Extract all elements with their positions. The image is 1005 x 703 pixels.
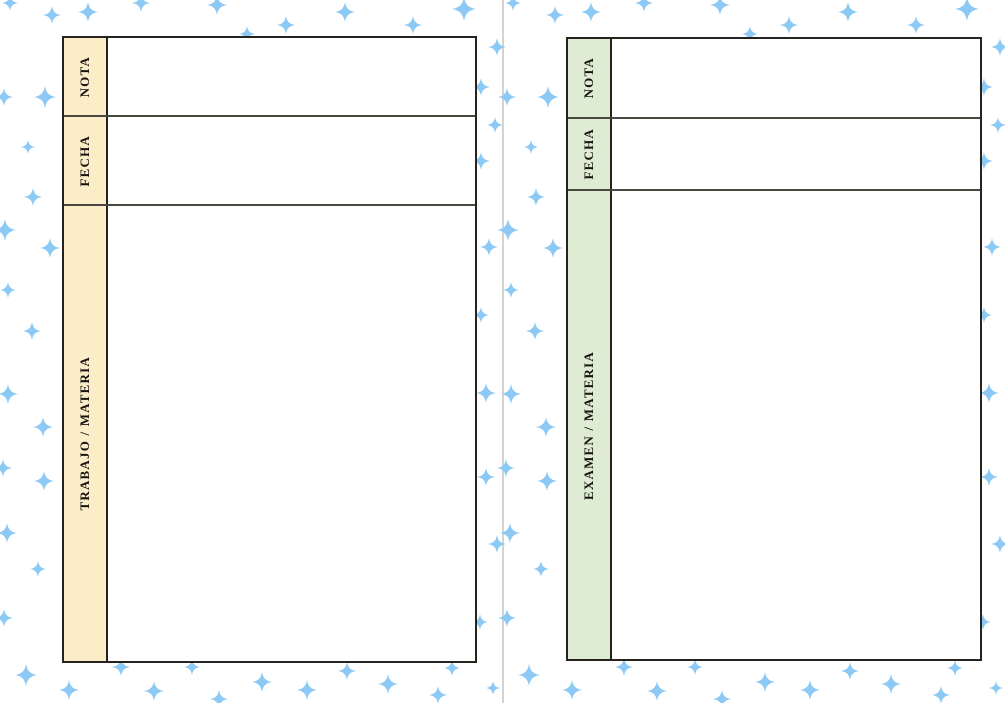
sparkle-icon: [21, 140, 35, 154]
row-header-label: NOTA: [581, 57, 597, 98]
sparkle-icon: [527, 188, 545, 206]
homework-tracker-table: NOTA FECHA TRABAJO / MATERIA: [62, 36, 477, 663]
sparkle-icon: [0, 219, 16, 241]
sparkle-icon: [562, 680, 582, 700]
sparkle-icon: [0, 609, 13, 627]
sparkle-icon: [0, 523, 17, 543]
sparkle-icon: [23, 322, 41, 340]
sparkle-icon: [710, 0, 730, 15]
sparkle-icon: [537, 86, 559, 108]
sparkle-icon: [30, 561, 46, 577]
sparkle-icon: [991, 38, 1005, 56]
table-row: NOTA: [64, 38, 475, 117]
sparkle-icon: [43, 6, 61, 24]
sparkle-icon: [210, 690, 228, 703]
sparkle-icon: [452, 0, 476, 21]
sparkle-icon: [838, 2, 858, 22]
sparkle-icon: [59, 680, 79, 700]
sparkle-icon: [991, 535, 1005, 553]
sparkle-icon: [378, 674, 398, 694]
sparkle-icon: [713, 690, 731, 703]
row-header-label: FECHA: [581, 128, 597, 180]
sparkle-icon: [500, 523, 520, 543]
sparkle-icon: [841, 662, 859, 680]
sparkle-icon: [487, 117, 503, 133]
row-header-label: TRABAJO / MATERIA: [77, 356, 93, 511]
sparkle-icon: [755, 672, 775, 692]
sparkle-icon: [979, 383, 999, 403]
row-header-label: EXAMEN / MATERIA: [581, 351, 597, 500]
table-row: FECHA: [568, 119, 980, 191]
exam-tracker-table: NOTA FECHA EXAMEN / MATERIA: [566, 37, 982, 661]
sparkle-icon: [989, 681, 1003, 695]
sparkle-icon: [144, 681, 164, 701]
sparkle-icon: [0, 384, 18, 404]
sparkle-icon: [480, 238, 498, 256]
sparkle-icon: [780, 16, 798, 34]
sparkle-icon: [207, 0, 227, 15]
sparkle-icon: [635, 0, 653, 12]
sparkle-icon: [78, 2, 98, 22]
sparkle-icon: [501, 384, 521, 404]
row-content-cell: [612, 191, 980, 659]
sparkle-icon: [581, 2, 601, 22]
sparkle-icon: [0, 282, 16, 298]
sparkle-icon: [687, 659, 703, 675]
row-header-fecha: FECHA: [568, 119, 612, 189]
sparkle-icon: [497, 219, 519, 241]
sparkle-icon: [34, 471, 54, 491]
row-header-fecha: FECHA: [64, 117, 108, 204]
sparkle-icon: [488, 38, 506, 56]
sparkle-icon: [990, 117, 1005, 133]
sparkle-icon: [498, 609, 516, 627]
sparkle-icon: [15, 664, 37, 686]
sparkle-icon: [546, 6, 564, 24]
sparkle-icon: [505, 0, 521, 11]
table-row: FECHA: [64, 117, 475, 206]
sparkle-icon: [40, 238, 60, 258]
sparkle-icon: [0, 459, 12, 477]
sparkle-icon: [477, 468, 495, 486]
row-content-cell: [108, 206, 475, 661]
sparkle-icon: [907, 16, 925, 34]
sparkle-icon: [2, 0, 18, 11]
sparkle-icon: [34, 86, 56, 108]
row-header-label: FECHA: [77, 135, 93, 187]
sparkle-icon: [497, 459, 515, 477]
sparkle-icon: [533, 561, 549, 577]
sparkle-icon: [476, 383, 496, 403]
row-header-nota: NOTA: [568, 39, 612, 117]
sparkle-icon: [881, 674, 901, 694]
sparkle-icon: [647, 681, 667, 701]
sparkle-icon: [404, 16, 422, 34]
sparkle-icon: [526, 322, 544, 340]
table-row: NOTA: [568, 39, 980, 119]
sparkle-icon: [983, 238, 1001, 256]
row-header-trabajo-materia: TRABAJO / MATERIA: [64, 206, 108, 661]
row-header-nota: NOTA: [64, 38, 108, 115]
sparkle-icon: [932, 686, 950, 703]
sparkle-icon: [518, 664, 540, 686]
row-content-cell: [108, 38, 475, 115]
sparkle-icon: [536, 417, 556, 437]
sparkle-icon: [955, 0, 979, 21]
row-content-cell: [108, 117, 475, 204]
sparkle-icon: [338, 662, 356, 680]
row-content-cell: [612, 119, 980, 189]
sparkle-icon: [498, 88, 516, 106]
sparkle-icon: [24, 188, 42, 206]
row-header-label: NOTA: [77, 56, 93, 97]
table-row: EXAMEN / MATERIA: [568, 191, 980, 659]
sparkle-icon: [0, 88, 13, 106]
sparkle-icon: [252, 672, 272, 692]
sparkle-icon: [486, 681, 500, 695]
table-row: TRABAJO / MATERIA: [64, 206, 475, 661]
sparkle-icon: [503, 282, 519, 298]
planner-spread: NOTA FECHA TRABAJO / MATERIA NOTA: [0, 0, 1005, 703]
sparkle-icon: [800, 680, 820, 700]
sparkle-icon: [543, 238, 563, 258]
row-content-cell: [612, 39, 980, 117]
sparkle-icon: [132, 0, 150, 12]
sparkle-icon: [33, 417, 53, 437]
row-header-examen-materia: EXAMEN / MATERIA: [568, 191, 612, 659]
sparkle-icon: [429, 686, 447, 703]
sparkle-icon: [980, 468, 998, 486]
sparkle-icon: [297, 680, 317, 700]
sparkle-icon: [947, 660, 963, 676]
sparkle-icon: [335, 2, 355, 22]
sparkle-icon: [524, 140, 538, 154]
sparkle-icon: [277, 16, 295, 34]
sparkle-icon: [537, 471, 557, 491]
